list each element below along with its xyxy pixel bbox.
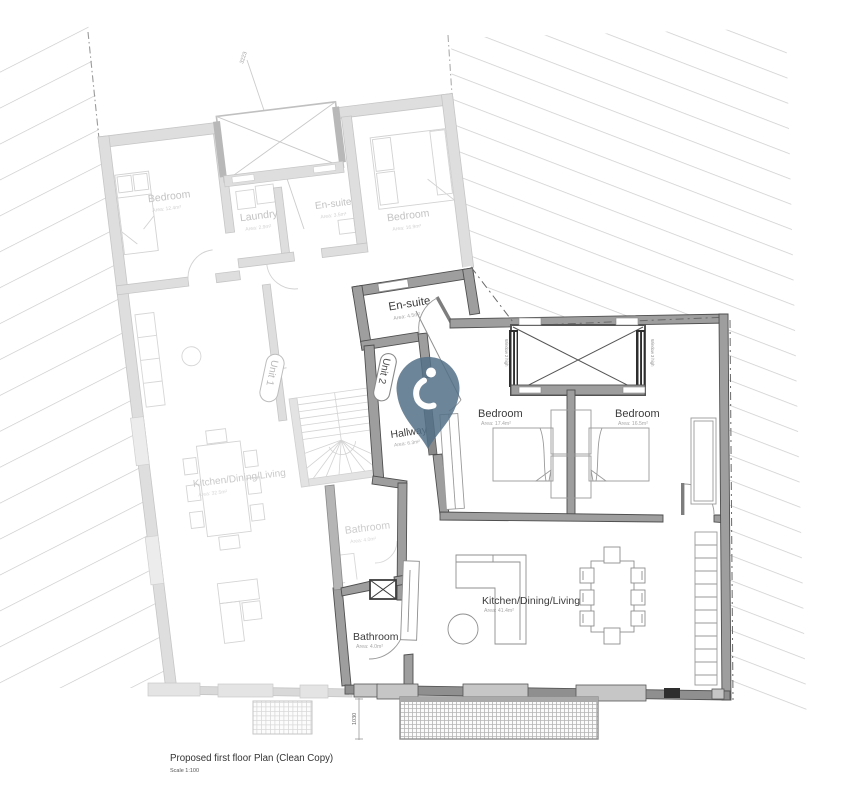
svg-text:Bedroom: Bedroom <box>478 408 523 420</box>
svg-text:Area: 41.4m²: Area: 41.4m² <box>484 608 514 614</box>
svg-text:Window 2 high: Window 2 high <box>504 339 509 367</box>
svg-text:1030: 1030 <box>352 713 358 725</box>
svg-text:Kitchen/Dining/Living: Kitchen/Dining/Living <box>482 595 580 607</box>
svg-text:Area: 17.4m²: Area: 17.4m² <box>481 421 511 427</box>
svg-text:Window 3 high: Window 3 high <box>650 339 655 367</box>
svg-text:Scale 1:100: Scale 1:100 <box>170 768 199 774</box>
svg-text:Bedroom: Bedroom <box>615 408 660 420</box>
svg-text:Bathroom: Bathroom <box>353 631 399 643</box>
svg-text:Area: 4.0m²: Area: 4.0m² <box>356 644 383 650</box>
svg-text:Area: 16.5m²: Area: 16.5m² <box>618 421 648 427</box>
svg-text:Proposed first floor Plan (Cle: Proposed first floor Plan (Clean Copy) <box>170 753 333 764</box>
